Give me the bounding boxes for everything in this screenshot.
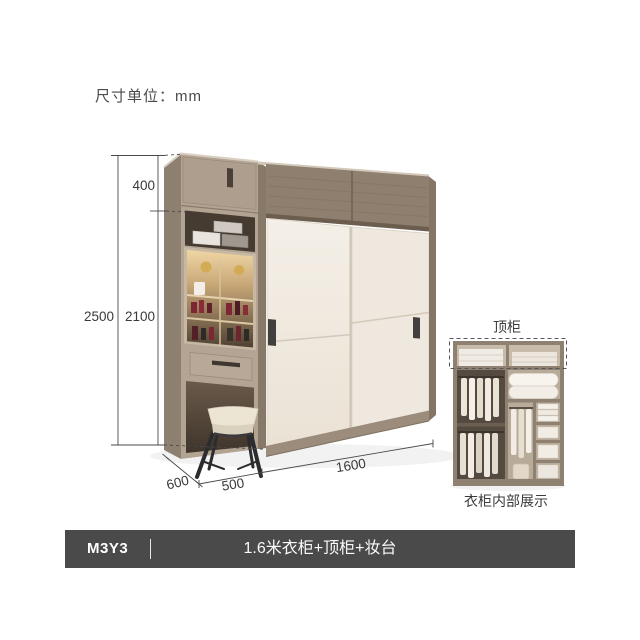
bottle-row2-5	[236, 326, 241, 341]
inset-basket	[513, 464, 529, 479]
inset-pillows	[509, 374, 558, 399]
box-right	[222, 234, 248, 248]
door-left-handle	[268, 319, 276, 346]
stool-cushion-top	[208, 407, 258, 427]
perfume-1	[191, 302, 197, 313]
tower-side-panel	[164, 154, 181, 459]
box-left	[193, 231, 220, 246]
wardrobe-right-side	[429, 177, 436, 422]
bottle-row2-3	[209, 327, 214, 340]
inset-main-divider	[505, 370, 508, 480]
inset-right-shelves	[536, 404, 560, 478]
perfume-6	[243, 305, 248, 315]
perfume-4	[226, 303, 232, 315]
bottle-row2-2	[201, 328, 206, 340]
tower-top-cabinet-handle	[227, 168, 233, 188]
perfume-5	[235, 301, 240, 315]
box-top	[214, 221, 242, 234]
footer-bar: M3Y3 1.6米衣柜+顶柜+妆台	[65, 530, 575, 568]
door-right-handle	[413, 317, 420, 339]
vanity-niche	[184, 247, 256, 351]
wardrobe-illustration	[164, 154, 436, 478]
dim-label-top-cabinet-height: 400	[132, 178, 155, 193]
dim-label-total-height: 2500	[84, 309, 114, 324]
white-jar	[194, 282, 205, 295]
inset-top-divider	[506, 345, 509, 366]
sliding-door-right	[352, 227, 429, 435]
inset-bedding-left	[459, 349, 503, 366]
inset-bedding-right	[512, 352, 557, 366]
gold-plant-left	[201, 262, 212, 273]
dim-label-depth: 600	[165, 473, 190, 493]
bottle-row2-6	[244, 329, 249, 341]
gold-plant-right	[234, 265, 244, 275]
sliding-door-left	[267, 219, 352, 448]
inset-pillow-shelf	[508, 399, 560, 403]
bottle-row2-1	[192, 326, 198, 340]
interior-inset: 顶柜 衣柜内部展示	[450, 319, 567, 509]
dim-label-dresser-width: 500	[221, 475, 246, 493]
inset-hanging-clothes-bottom	[458, 432, 504, 478]
product-dimension-image: 尺寸单位：mm	[0, 0, 640, 640]
door-left-panel	[267, 219, 352, 448]
tower-top-cabinet-door	[183, 157, 256, 210]
bottle-row2-4	[227, 328, 233, 341]
inset-mid-shelf	[457, 423, 505, 427]
inset-hanging-clothes-top	[458, 377, 504, 421]
sliding-wardrobe	[258, 162, 436, 457]
tower-right-edge	[258, 162, 266, 449]
inset-sub-divider	[533, 402, 536, 480]
dim-label-main-height: 2100	[125, 309, 155, 324]
inset-top-cabinet-label: 顶柜	[493, 319, 521, 335]
product-title: 1.6米衣柜+顶柜+妆台	[65, 530, 575, 568]
inset-caption: 衣柜内部展示	[464, 493, 548, 509]
perfume-2	[199, 300, 204, 313]
perfume-3	[207, 303, 212, 313]
inset-bottom-frame	[453, 479, 564, 486]
